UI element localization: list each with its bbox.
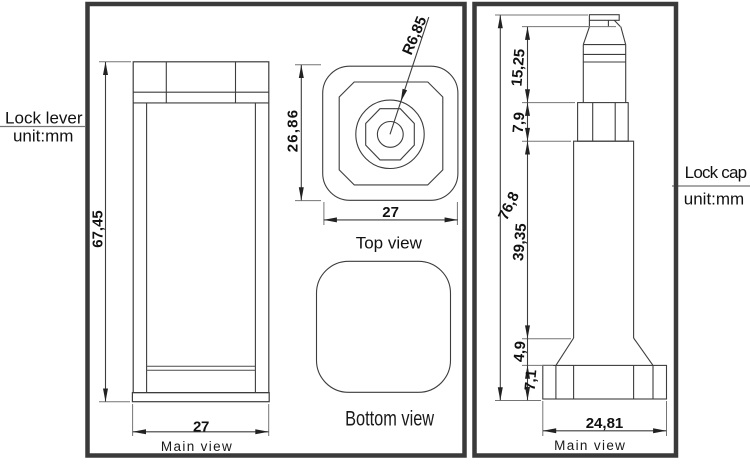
svg-text:76,8: 76,8 [495,189,523,223]
svg-text:15,25: 15,25 [508,48,528,87]
svg-text:R6,85: R6,85 [399,14,430,57]
svg-text:27: 27 [382,204,399,221]
svg-text:39,35: 39,35 [510,223,530,262]
svg-text:unit:mm: unit:mm [13,127,73,146]
svg-text:27: 27 [193,419,209,436]
svg-text:Main view: Main view [554,438,626,453]
svg-text:Lock lever: Lock lever [5,108,83,127]
svg-text:4,9: 4,9 [511,340,530,362]
svg-text:26,86: 26,86 [285,109,302,153]
svg-text:67,45: 67,45 [90,210,107,248]
svg-text:Top view: Top view [356,234,423,253]
svg-text:unit:mm: unit:mm [684,190,744,209]
svg-text:7,9: 7,9 [510,111,529,133]
svg-text:24,81: 24,81 [586,415,624,432]
svg-text:Bottom view: Bottom view [345,407,435,430]
svg-text:Main view: Main view [161,439,233,454]
svg-text:7,1: 7,1 [522,369,541,391]
svg-text:Lock cap: Lock cap [685,163,747,182]
